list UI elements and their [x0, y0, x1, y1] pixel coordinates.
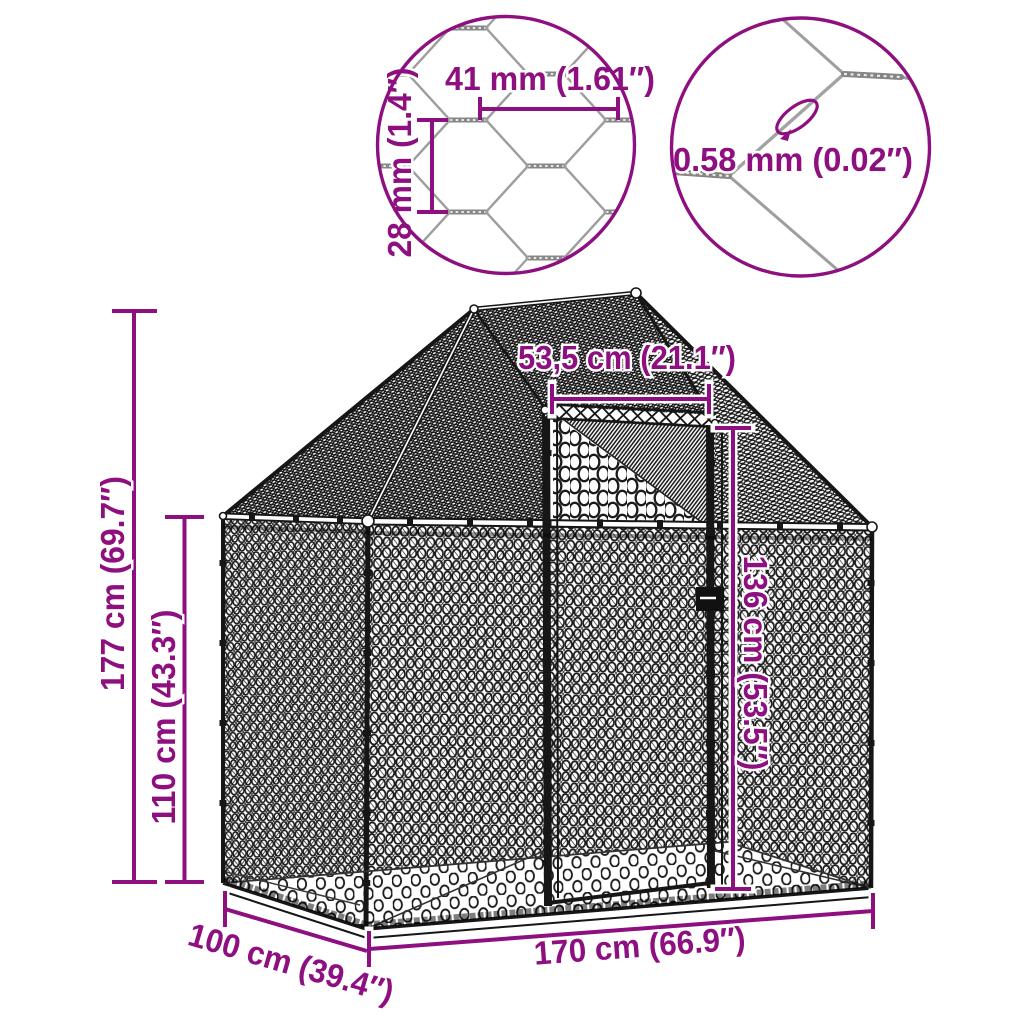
svg-text:0.58 mm (0.02″): 0.58 mm (0.02″): [673, 141, 913, 178]
svg-text:110 cm (43.3″): 110 cm (43.3″): [145, 610, 182, 825]
svg-text:136 cm (53.5″): 136 cm (53.5″): [737, 556, 774, 771]
svg-text:177 cm (69.7″): 177 cm (69.7″): [94, 476, 131, 691]
svg-text:53,5 cm (21.1″): 53,5 cm (21.1″): [518, 339, 736, 376]
